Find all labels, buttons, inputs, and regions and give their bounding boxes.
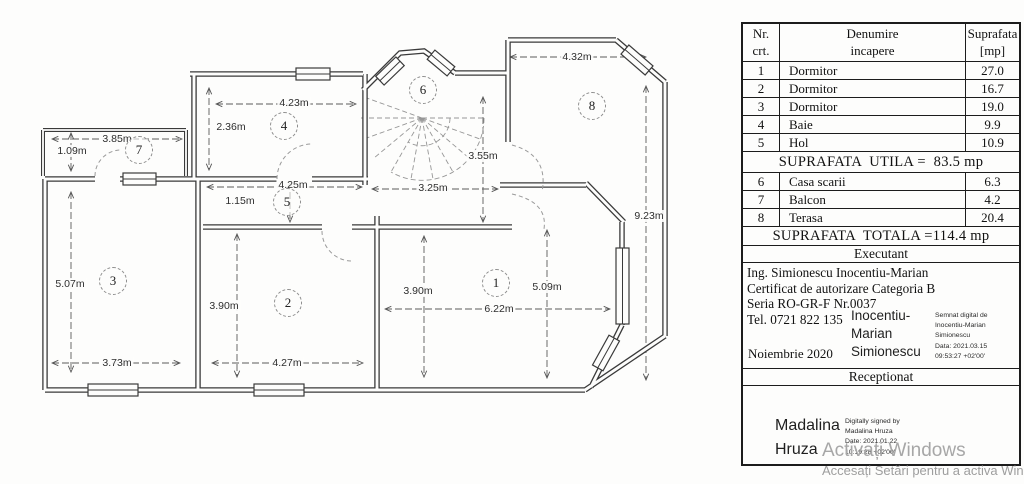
suprafata-utila-row: SUPRAFATA UTILA = 83.5 mp xyxy=(743,152,1019,173)
walls xyxy=(45,40,665,390)
table-row: 2 Dormitor 16.7 xyxy=(743,80,1019,98)
balcony-walls xyxy=(43,130,186,176)
row-nr: 1 xyxy=(743,62,780,79)
row-name: Dormitor xyxy=(780,80,966,97)
row-area: 20.4 xyxy=(966,209,1019,226)
row-name: Hol xyxy=(780,134,966,151)
table-row: 1 Dormitor 27.0 xyxy=(743,62,1019,80)
suprafata-totala-row: SUPRAFATA TOTALA =114.4 mp xyxy=(743,227,1019,246)
row-area: 6.3 xyxy=(966,173,1019,190)
row-name: Balcon xyxy=(780,191,966,208)
table-row: 7 Balcon 4.2 xyxy=(743,191,1019,209)
scanned-floor-plan-page: 3.85m1.09m5.07m3.73m3.90m4.27m4.23m2.36m… xyxy=(0,0,1024,484)
row-name: Baie xyxy=(780,116,966,133)
row-area: 19.0 xyxy=(966,98,1019,115)
row-name: Terasa xyxy=(780,209,966,226)
table-row: 5 Hol 10.9 xyxy=(743,134,1019,152)
dimension-lines xyxy=(52,57,646,380)
area-table: Nr. crt. Denumire incapere Suprafata [mp… xyxy=(741,22,1021,466)
floor-plan-drawing xyxy=(0,0,740,484)
row-area: 16.7 xyxy=(966,80,1019,97)
col-header-nr: Nr. crt. xyxy=(743,24,780,61)
row-nr: 6 xyxy=(743,173,780,190)
table-row: 8 Terasa 20.4 xyxy=(743,209,1019,227)
row-area: 27.0 xyxy=(966,62,1019,79)
executant-label: Executant xyxy=(743,246,1019,263)
row-nr: 3 xyxy=(743,98,780,115)
activate-windows-watermark: Activați Windows xyxy=(822,440,966,462)
executant-signature-note: Semnat digital de Inocentiu-Marian Simio… xyxy=(935,311,1019,362)
table-row: 3 Dormitor 19.0 xyxy=(743,98,1019,116)
table-header: Nr. crt. Denumire incapere Suprafata [mp… xyxy=(743,24,1019,62)
receptionat-label: Receptionat xyxy=(743,369,1019,386)
row-name: Dormitor xyxy=(780,98,966,115)
row-area: 10.9 xyxy=(966,134,1019,151)
executant-digital-signature: Inocentiu- Marian Simionescu xyxy=(851,307,921,362)
executant-cell: Ing. Simionescu Inocentiu-MarianCertific… xyxy=(743,263,1019,369)
row-nr: 5 xyxy=(743,134,780,151)
row-nr: 4 xyxy=(743,116,780,133)
col-header-denumire: Denumire incapere xyxy=(780,24,966,61)
spiral-stair xyxy=(360,97,484,180)
executant-date: Noiembrie 2020 xyxy=(748,346,833,362)
row-area: 4.2 xyxy=(966,191,1019,208)
door-arcs xyxy=(95,144,544,261)
row-area: 9.9 xyxy=(966,116,1019,133)
col-header-suprafata: Suprafata [mp] xyxy=(966,24,1019,61)
row-name: Dormitor xyxy=(780,62,966,79)
row-name: Casa scarii xyxy=(780,173,966,190)
row-nr: 8 xyxy=(743,209,780,226)
row-nr: 7 xyxy=(743,191,780,208)
windows xyxy=(88,45,653,396)
table-row: 6 Casa scarii 6.3 xyxy=(743,173,1019,191)
activate-windows-hint: Accesați Setări pentru a activa Windows xyxy=(822,463,1024,478)
row-nr: 2 xyxy=(743,80,780,97)
table-row: 4 Baie 9.9 xyxy=(743,116,1019,134)
